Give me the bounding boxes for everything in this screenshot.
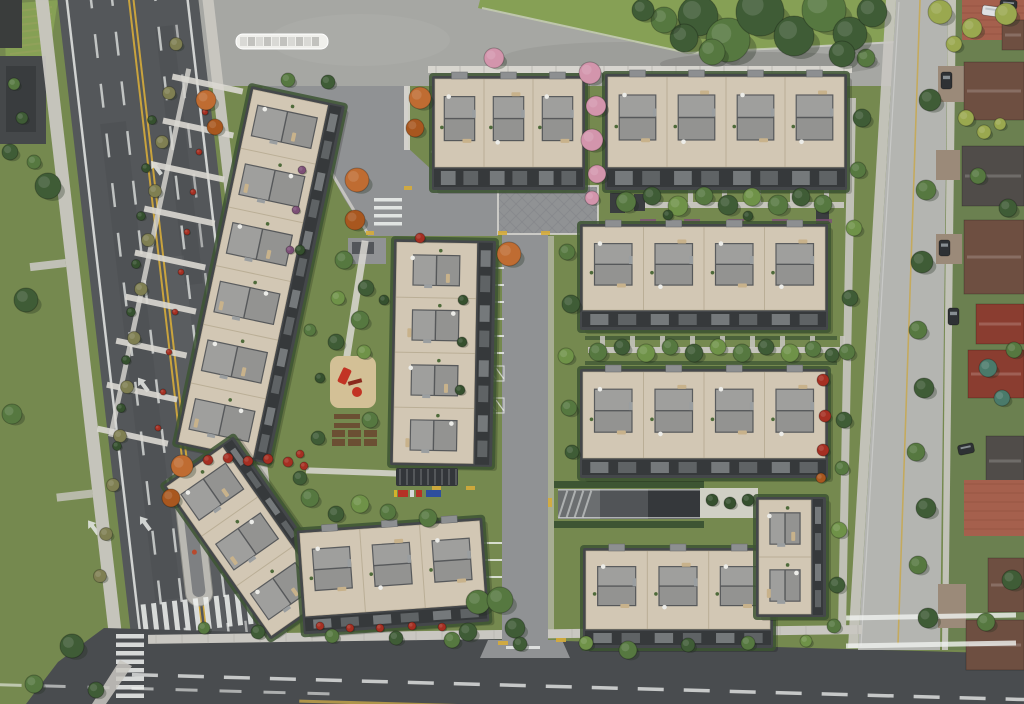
patio-lounger xyxy=(407,555,411,563)
balcony-slat xyxy=(760,171,778,185)
circle xyxy=(284,458,289,463)
patio-table xyxy=(779,284,784,289)
south-mid-block xyxy=(293,513,494,638)
circle xyxy=(996,120,1001,125)
circle xyxy=(412,90,422,100)
parking-bar-cells-b-3 xyxy=(296,37,303,46)
circle xyxy=(911,323,919,331)
patio-sofa xyxy=(617,283,626,287)
circle xyxy=(439,624,443,628)
circle xyxy=(500,245,511,256)
patio-sofa xyxy=(798,385,807,389)
circle xyxy=(996,392,1003,399)
patio-sofa xyxy=(738,430,747,434)
balcony-slat xyxy=(655,633,673,643)
patio-lounger xyxy=(421,449,429,453)
circle xyxy=(816,197,824,205)
circle xyxy=(179,270,182,273)
rect xyxy=(433,559,472,582)
circle xyxy=(161,390,164,393)
circle xyxy=(917,381,926,390)
patio-lounger xyxy=(750,256,754,264)
patio-sofa xyxy=(641,138,650,142)
circle xyxy=(914,254,924,264)
circle xyxy=(108,480,114,486)
circle xyxy=(408,121,416,129)
circle xyxy=(848,222,855,229)
circle xyxy=(861,1,875,15)
driveway-4 xyxy=(938,584,966,628)
circle xyxy=(171,39,177,45)
patio-sofa xyxy=(682,563,691,567)
patio-table xyxy=(767,514,772,519)
patio-lounger xyxy=(629,402,633,410)
patio-sofa xyxy=(444,384,448,393)
balcony-slat xyxy=(739,314,757,325)
balcony-slat xyxy=(512,171,527,185)
patio-table xyxy=(622,93,627,98)
rect xyxy=(776,264,814,285)
patio-lounger xyxy=(810,256,814,264)
patio-table xyxy=(719,241,724,246)
circle xyxy=(164,88,170,94)
circle xyxy=(639,346,647,354)
roof-access-box xyxy=(609,544,625,551)
parking-bar-cells-b-1 xyxy=(264,37,271,46)
circle xyxy=(95,571,101,577)
ramp-hedge-south xyxy=(554,521,704,528)
bike-rack-blue xyxy=(426,490,441,497)
south-road-dashes-14 xyxy=(776,691,802,695)
circle xyxy=(317,623,321,627)
balcony-slat xyxy=(480,305,490,322)
roof-access-box xyxy=(787,365,803,372)
south-road-dashes-15 xyxy=(822,692,848,696)
circle xyxy=(173,310,176,313)
circle xyxy=(582,65,592,75)
yellow-curb-ticks-2 xyxy=(366,231,374,235)
park-bench-1 xyxy=(334,414,360,419)
circle xyxy=(115,431,121,437)
balcony-slat xyxy=(590,462,608,473)
circle xyxy=(794,190,802,198)
rect xyxy=(594,411,632,433)
circle xyxy=(287,247,291,251)
balcony-slat xyxy=(490,171,505,185)
circle xyxy=(779,21,797,39)
circle xyxy=(921,611,930,620)
circle xyxy=(563,402,570,409)
circle xyxy=(191,190,194,193)
circle xyxy=(253,627,259,633)
patio-planter xyxy=(614,125,618,129)
parking-bar-cells-b-2 xyxy=(280,37,287,46)
patio-lounger xyxy=(777,600,785,604)
circle xyxy=(931,3,942,14)
balcony-slat xyxy=(441,171,456,185)
patio-sofa xyxy=(560,139,569,143)
circle xyxy=(353,313,361,321)
circle xyxy=(204,456,209,461)
circle xyxy=(10,80,15,85)
patio-sofa xyxy=(791,532,795,541)
circle xyxy=(819,376,824,381)
roof-access-box xyxy=(550,72,566,79)
yellow-curb-ticks-4 xyxy=(548,498,552,507)
circle xyxy=(671,199,680,208)
circle xyxy=(683,1,701,19)
context-house-5 xyxy=(976,304,1024,344)
circle xyxy=(299,167,303,171)
circle xyxy=(327,631,333,637)
roof-access-box xyxy=(726,220,742,227)
balcony-slat xyxy=(792,171,810,185)
circle xyxy=(101,529,107,535)
patio-lounger xyxy=(472,110,476,118)
roof-access-box xyxy=(666,365,682,372)
circle xyxy=(209,121,216,128)
garden-boxes-row-2-0 xyxy=(332,439,345,446)
patio-planter xyxy=(489,126,493,130)
circle xyxy=(293,207,297,211)
circle xyxy=(589,99,598,108)
ramp-deck-3 xyxy=(648,489,700,519)
context-house-2 xyxy=(964,62,1024,120)
circle xyxy=(456,386,461,391)
circle xyxy=(508,621,517,630)
parking-bar-cells-b-0 xyxy=(248,37,255,46)
aerial-site-plan xyxy=(0,0,1024,704)
circle xyxy=(1005,573,1014,582)
patio-table xyxy=(598,387,603,392)
patio-lounger xyxy=(424,284,432,288)
circle xyxy=(972,170,979,177)
parking-bar-cells-a-4 xyxy=(304,37,311,46)
balcony-slat xyxy=(815,590,821,607)
patio-sofa xyxy=(446,274,450,283)
rect xyxy=(598,586,636,606)
zebra-crossing-southwest-0 xyxy=(116,634,144,639)
facade-band xyxy=(434,169,583,187)
circle xyxy=(301,463,305,467)
balcony-slat xyxy=(733,171,751,185)
circle xyxy=(360,282,367,289)
context-house-4 xyxy=(964,220,1024,294)
circle xyxy=(911,558,919,566)
circle xyxy=(38,176,50,188)
balcony-slat xyxy=(679,314,697,325)
rect xyxy=(941,72,952,89)
circle xyxy=(348,171,359,182)
circle xyxy=(708,496,713,501)
roof-access-box xyxy=(748,70,764,77)
patio-sofa xyxy=(677,385,686,389)
circle xyxy=(981,361,989,369)
parking-bar-cells-a-3 xyxy=(288,37,295,46)
context-house-7 xyxy=(986,436,1024,486)
rect xyxy=(435,310,459,341)
park-bench-2 xyxy=(334,423,360,428)
circle xyxy=(735,346,743,354)
patio-planter xyxy=(538,126,542,130)
patio-sofa xyxy=(405,438,409,447)
circle xyxy=(591,345,599,353)
garden-boxes-row-1-0 xyxy=(332,430,345,437)
rect xyxy=(950,312,957,315)
patio-planter xyxy=(673,125,677,129)
rect xyxy=(314,567,353,590)
south-road-dashes-3 xyxy=(270,677,296,681)
zebra-crossing-southwest-7 xyxy=(116,694,144,699)
circle xyxy=(837,463,843,469)
south-road-dashes-9 xyxy=(546,684,572,688)
roof-access-box xyxy=(670,544,686,551)
circle xyxy=(852,164,859,171)
ramp-edge-bottom xyxy=(558,517,700,519)
circle xyxy=(697,189,705,197)
circle xyxy=(348,213,357,222)
patio-table xyxy=(794,571,799,576)
circle xyxy=(4,146,11,153)
parking-bar-cells-a-2 xyxy=(272,37,279,46)
garden-boxes-row-1-2 xyxy=(364,430,377,437)
parking-bar-cells-a-1 xyxy=(256,37,263,46)
balcony-slat xyxy=(479,360,489,377)
circle xyxy=(133,261,137,265)
parked-car-4 xyxy=(939,240,950,256)
patio-planter xyxy=(715,592,719,596)
circle xyxy=(760,341,767,348)
patio-table xyxy=(658,432,663,437)
roof-access-box xyxy=(630,70,646,77)
rect xyxy=(542,119,572,141)
east-mews-stubs-1 xyxy=(630,336,635,348)
circle xyxy=(744,212,749,217)
garden-boxes-row-1-1 xyxy=(348,430,361,437)
circle xyxy=(922,92,932,102)
rect xyxy=(943,76,950,79)
circle xyxy=(295,473,301,479)
zebra-crossing-southwest-6 xyxy=(116,685,144,690)
circle xyxy=(635,2,645,12)
patio-lounger xyxy=(810,402,814,410)
circle xyxy=(297,451,301,455)
circle xyxy=(838,414,845,421)
circle xyxy=(616,341,623,348)
balcony-slat xyxy=(481,250,491,267)
ramp-edge-top xyxy=(558,489,700,491)
circle xyxy=(123,357,127,361)
south-road-dashes-17 xyxy=(914,695,940,699)
circle xyxy=(802,637,807,642)
circle xyxy=(837,21,852,36)
rect xyxy=(269,170,305,207)
yellow-curb-ticks-3 xyxy=(404,186,412,190)
circle xyxy=(827,350,833,356)
south-road-dashes-16 xyxy=(868,693,894,697)
roof-access-box xyxy=(452,72,468,79)
rect xyxy=(776,411,814,433)
circle xyxy=(841,346,848,353)
zebra-crossing-southwest-2 xyxy=(116,651,144,656)
circle xyxy=(129,333,135,339)
balcony-slat xyxy=(772,462,790,473)
patio-table xyxy=(446,94,451,99)
circle xyxy=(313,433,319,439)
patio-planter xyxy=(650,271,654,275)
roof-access-box xyxy=(787,220,803,227)
south-road-dashes-18 xyxy=(960,696,986,700)
bike-rack-red-2 xyxy=(416,490,422,497)
patio-sofa xyxy=(620,604,629,608)
circle xyxy=(621,643,629,651)
patio-lounger xyxy=(521,110,525,118)
circle xyxy=(306,326,311,331)
circle xyxy=(323,77,329,83)
circle xyxy=(726,499,731,504)
circle xyxy=(687,346,695,354)
patio-lounger xyxy=(750,402,754,410)
parked-car-3 xyxy=(941,72,952,89)
circle xyxy=(380,296,385,301)
balcony-slat xyxy=(478,386,488,403)
spur-crosswalk-bars-2 xyxy=(374,214,402,218)
patio-table xyxy=(779,432,784,437)
south-road-dashes-2-7 xyxy=(307,692,329,696)
rect xyxy=(281,112,317,149)
roof-access-box xyxy=(807,70,823,77)
circle xyxy=(664,211,669,216)
patio-lounger xyxy=(629,256,633,264)
yellow-curb-ticks-6 xyxy=(466,486,475,490)
circle xyxy=(743,638,749,644)
spur-crosswalk-bars-0 xyxy=(374,198,402,202)
yellow-curb-ticks-7 xyxy=(498,641,508,645)
rect xyxy=(444,119,474,141)
patio-lounger xyxy=(422,394,430,398)
patio-planter xyxy=(771,271,775,275)
south-road-dashes-5 xyxy=(362,679,388,683)
patio-sofa xyxy=(798,239,807,243)
circle xyxy=(829,621,835,627)
circle xyxy=(855,111,863,119)
circle xyxy=(446,634,453,641)
patio-sofa xyxy=(617,430,626,434)
east-block-2 xyxy=(577,365,833,482)
rect xyxy=(655,411,693,433)
patio-planter xyxy=(593,592,597,596)
circle xyxy=(817,474,822,479)
circle xyxy=(487,51,496,60)
south-road-dashes-1 xyxy=(178,674,204,678)
circle xyxy=(567,447,573,453)
patio-sofa xyxy=(677,239,686,243)
north-block-2 xyxy=(602,70,852,194)
rect xyxy=(655,264,693,285)
south-road-dashes-4 xyxy=(316,678,342,682)
south-road-dashes-7 xyxy=(454,682,480,686)
patio-table xyxy=(598,241,603,246)
circle xyxy=(377,625,381,629)
patio-planter xyxy=(590,271,594,275)
balcony-slat xyxy=(561,171,576,185)
driveway-2 xyxy=(936,150,960,180)
rect xyxy=(720,586,758,606)
south-road-dashes-2-1 xyxy=(44,684,66,688)
balcony-slat xyxy=(400,612,419,622)
circle xyxy=(149,117,153,121)
roof-access-box xyxy=(726,365,742,372)
circle xyxy=(264,455,269,460)
context-building-nw-1 xyxy=(0,0,22,48)
patio-sofa xyxy=(337,587,346,592)
balcony-slat xyxy=(593,633,611,643)
patio-sofa xyxy=(394,539,403,544)
circle xyxy=(174,458,184,468)
patio-lounger xyxy=(830,109,834,117)
balcony-slat xyxy=(815,533,821,550)
circle xyxy=(783,346,791,354)
rect xyxy=(678,118,715,141)
balcony-slat xyxy=(479,331,489,348)
circle xyxy=(590,167,598,175)
circle xyxy=(382,506,389,513)
balcony-slat xyxy=(815,507,821,524)
circle xyxy=(138,213,142,217)
circle xyxy=(17,291,28,302)
patio-planter xyxy=(654,592,658,596)
balcony-slat xyxy=(463,171,478,185)
yellow-curb-ticks-0 xyxy=(498,231,507,235)
circle xyxy=(224,454,229,459)
yellow-curb-ticks-5 xyxy=(432,486,441,490)
rect xyxy=(715,411,753,433)
circle xyxy=(919,501,928,510)
circle xyxy=(416,234,421,239)
circle xyxy=(515,639,521,645)
east-mews-hedge-south xyxy=(585,361,837,365)
circle xyxy=(200,624,205,629)
drive-east-walk xyxy=(548,236,554,636)
circle xyxy=(364,414,371,421)
circle xyxy=(744,496,749,501)
circle xyxy=(490,590,502,602)
circle xyxy=(832,44,844,56)
bike-rack-white xyxy=(410,490,414,497)
circle xyxy=(303,491,311,499)
south-road-dashes-2-5 xyxy=(219,689,241,693)
balcony-slat xyxy=(815,564,821,581)
circle xyxy=(27,677,35,685)
patio-lounger xyxy=(423,339,431,343)
circle xyxy=(564,297,572,305)
patio-sofa xyxy=(511,92,520,96)
patio-table xyxy=(799,140,804,145)
circle xyxy=(469,593,480,604)
patio-sofa xyxy=(700,91,709,95)
patio-lounger xyxy=(570,110,574,118)
circle xyxy=(353,497,361,505)
circle xyxy=(150,186,156,192)
patio-lounger xyxy=(777,543,785,547)
southeast-wing xyxy=(753,494,831,621)
circle xyxy=(316,374,321,379)
circle xyxy=(821,412,826,417)
circle xyxy=(359,347,365,353)
parking-bar-cells-b-4 xyxy=(312,37,319,46)
rect xyxy=(941,244,948,247)
garden-boxes-row-2-1 xyxy=(348,439,361,446)
